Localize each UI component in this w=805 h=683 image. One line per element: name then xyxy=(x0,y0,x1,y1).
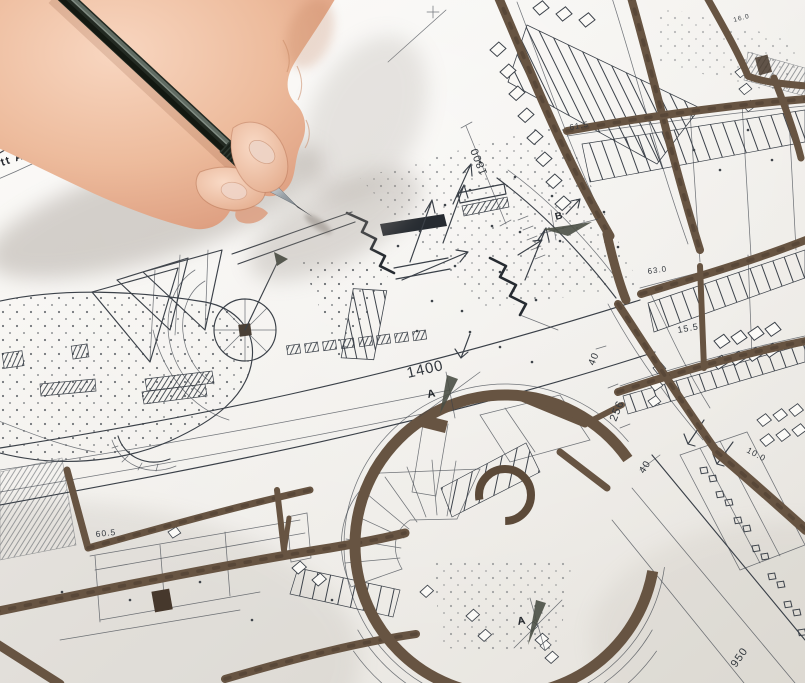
photo-hand-drawing-architectural-plan: Schnitt tt A-A 1 1800 1400 61.5 63.0 15.… xyxy=(0,0,805,683)
scene: Schnitt tt A-A 1 1800 1400 61.5 63.0 15.… xyxy=(0,0,805,683)
label-60-5: 60.5 xyxy=(95,527,116,539)
